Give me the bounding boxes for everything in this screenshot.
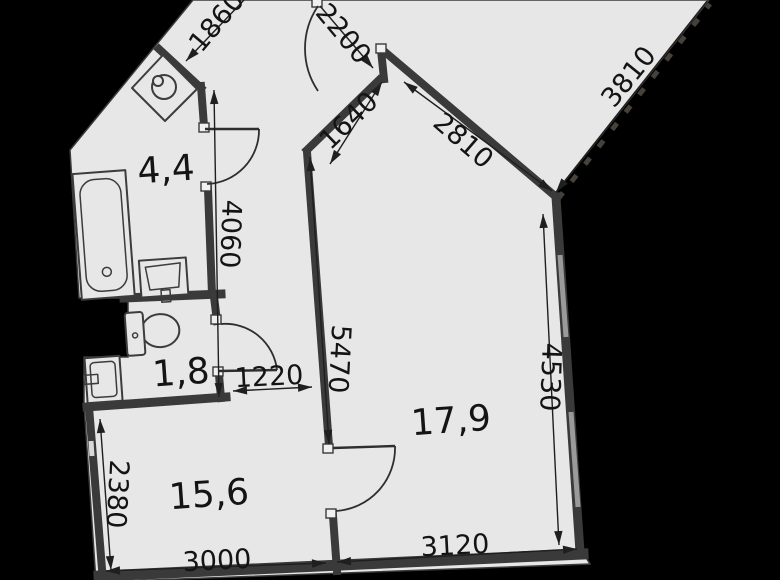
room-area-room: 17,9 — [410, 398, 493, 444]
room-area-wc: 1,8 — [151, 351, 211, 396]
wall-bathroom-right — [208, 189, 212, 294]
room-area-bathroom: 4,4 — [136, 148, 196, 193]
jamb-bathroom-top — [199, 123, 209, 132]
washbasin-outer — [85, 356, 123, 403]
washbasin-wc — [83, 356, 123, 403]
dim-label-4530: 4530 — [533, 342, 566, 412]
wall-niche-vertical — [201, 86, 204, 126]
window-left-small — [91, 441, 92, 456]
bathtub-outer — [72, 170, 134, 300]
jamb-room-top — [323, 444, 333, 453]
dim-label-4060: 4060 — [213, 199, 246, 269]
jamb-room-bottom — [326, 509, 336, 518]
floor-plan-svg: 1860 2200 1640 2810 3810 4060 5470 4530 … — [0, 0, 780, 580]
wall-room-door-stub — [333, 516, 337, 571]
dim-label-2380: 2380 — [100, 459, 135, 529]
dim-label-3000: 3000 — [182, 544, 252, 579]
floor-plan-canvas: 1860 2200 1640 2810 3810 4060 5470 4530 … — [0, 0, 780, 580]
room-area-living: 15,6 — [168, 472, 251, 518]
jamb-wc-top — [211, 315, 221, 324]
dim-label-3120: 3120 — [420, 529, 490, 564]
toilet-tank — [125, 312, 146, 356]
jamb-entry-bottom — [376, 44, 386, 53]
bathtub — [72, 170, 134, 300]
dim-label-1220: 1220 — [234, 360, 304, 395]
washing-machine-door-icon — [153, 76, 163, 86]
sink-bathroom-outer — [139, 257, 188, 297]
dim-label-5470: 5470 — [322, 324, 357, 394]
